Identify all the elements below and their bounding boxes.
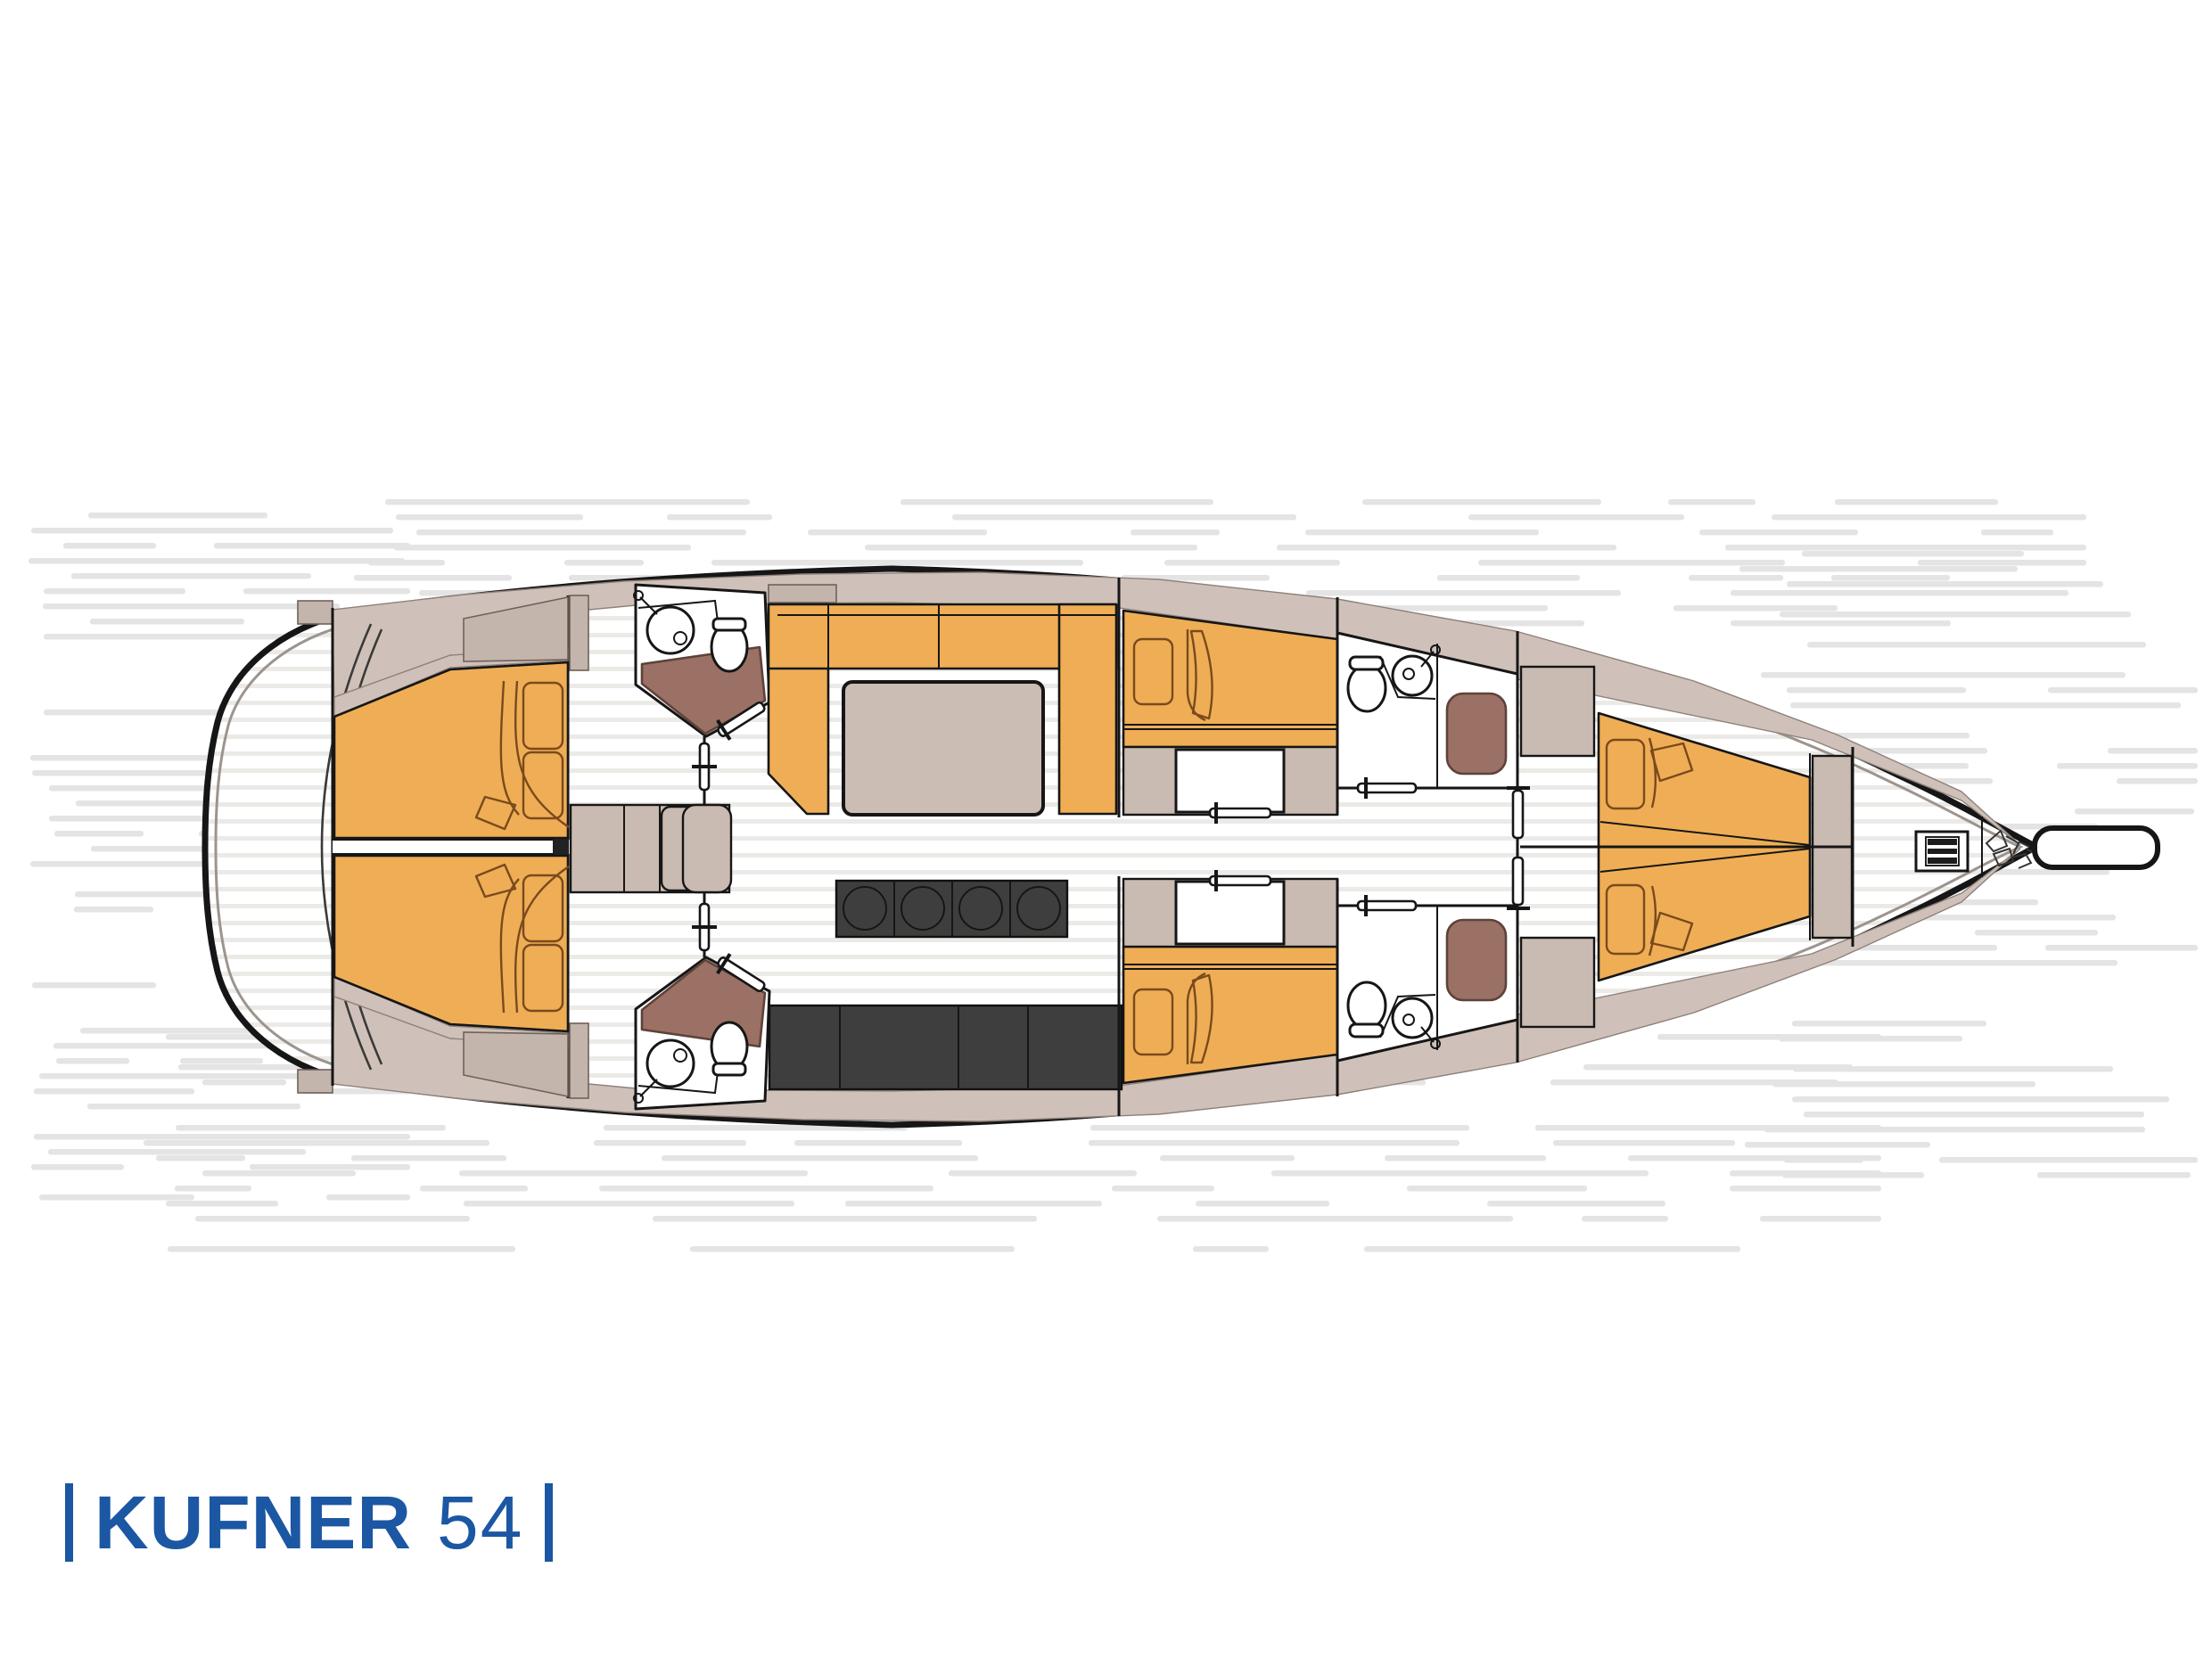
water-line-decor (1362, 499, 1601, 505)
water-line-decor (1131, 529, 1220, 536)
water-line-decor (662, 1155, 978, 1161)
stool-row (836, 881, 1067, 937)
water-line-decor (952, 514, 1296, 521)
water-line-decor (653, 1216, 1037, 1222)
water-line-decor (416, 529, 746, 536)
water-line-decor (1981, 529, 2053, 536)
toilet-tank (713, 1063, 745, 1075)
water-line-decor (1689, 575, 1783, 581)
shower-seat (1447, 694, 1506, 774)
water-line-decor (354, 575, 512, 581)
water-line-decor (1835, 499, 1998, 505)
water-line-decor (1790, 702, 2181, 709)
stern-locker-starboard (298, 1070, 333, 1093)
water-line-decor (845, 1201, 1102, 1207)
water-line-decor (326, 1194, 410, 1201)
water-line-decor (1784, 1157, 1863, 1163)
salon-back-locker (769, 585, 836, 603)
water-line-decor (464, 1201, 794, 1207)
water-line-decor (808, 529, 987, 536)
water-line-decor (1730, 1186, 1881, 1192)
water-line-decor (351, 1155, 506, 1161)
water-line-decor (1089, 1140, 1460, 1146)
water-line-decor (1739, 566, 2018, 572)
water-line-decor (1807, 642, 2146, 648)
water-line-decor (1160, 1155, 1295, 1161)
water-line-decor (1112, 1186, 1214, 1192)
windlass-stripe (1928, 849, 1957, 854)
water-line-decor (1407, 1186, 1587, 1192)
water-line-decor (1582, 1216, 1668, 1222)
water-line-decor (1760, 1216, 1881, 1222)
stern-locker-port (298, 601, 333, 624)
water-line-decor (1772, 1081, 2035, 1088)
aft-divider-door (553, 839, 569, 855)
water-line-decor (88, 513, 267, 519)
water-line-decor (1364, 1246, 1740, 1252)
water-line-decor (34, 1088, 194, 1095)
galley-worktop (769, 1005, 1122, 1089)
water-line-decor (1939, 1157, 2198, 1163)
brand-name: KUFNER (95, 1485, 412, 1560)
water-line-decor (87, 1104, 300, 1110)
water-line-decor (1764, 1127, 2145, 1133)
water-line-decor (1090, 1125, 1469, 1131)
water-line-decor (900, 499, 1213, 505)
water-line-decor (30, 861, 228, 867)
forward-cabin-door (1513, 858, 1523, 905)
yacht-deck-plan-page: KUFNER 54 (0, 0, 2212, 1658)
water-line-decor (1731, 620, 1951, 627)
water-line-decor (1782, 1172, 1924, 1178)
toilet (1348, 665, 1386, 711)
water-line-decor (1799, 960, 2117, 966)
toilet-tank (1350, 657, 1383, 669)
salon-sofa-right-arm (1059, 604, 1116, 814)
water-line-decor (1787, 687, 1966, 694)
water-line-decor (1780, 611, 2131, 618)
water-line-decor (31, 1164, 124, 1170)
water-line-decor (243, 588, 410, 595)
water-line-decor (32, 982, 156, 989)
water-line-decor (2045, 945, 2198, 951)
water-line-decor (1487, 1201, 1665, 1207)
water-line-decor (29, 558, 405, 564)
water-line-decor (1385, 1155, 1546, 1161)
water-line-decor (39, 1194, 194, 1201)
water-line-decor (1792, 1021, 1986, 1027)
water-line-decor (594, 1140, 746, 1146)
deck-plan-drawing (0, 0, 2212, 1658)
water-line-decor (250, 1164, 410, 1170)
water-line-decor (168, 1246, 515, 1252)
water-line-decor (949, 1170, 1137, 1177)
water-line-decor (1793, 1066, 2113, 1072)
water-line-decor (175, 1186, 251, 1192)
water-line-decor (1802, 551, 2024, 557)
water-line-decor (1478, 560, 1785, 566)
water-line-decor (1772, 514, 2086, 521)
water-line-decor (1157, 1216, 1513, 1222)
toilet-tank (1350, 1024, 1383, 1037)
water-line-decor (166, 1201, 278, 1207)
toilet-tank (713, 619, 745, 630)
forward-cabin-door (1513, 791, 1523, 838)
water-line-decor (1668, 499, 1756, 505)
water-line-decor (56, 1058, 129, 1064)
water-line-decor (396, 514, 583, 521)
water-line-decor (1306, 590, 1621, 596)
water-line-decor (90, 619, 244, 625)
aft-side-locker-port (570, 595, 588, 670)
water-line-decor (667, 514, 772, 521)
aft-side-locker-starboard (570, 1023, 588, 1098)
water-line-decor (1725, 545, 2086, 551)
shower-seat (1447, 920, 1506, 1000)
aft-cabin-divider-gap (333, 841, 568, 853)
water-line-decor (2057, 763, 2198, 769)
water-line-decor (1831, 575, 1950, 581)
galley-counter (769, 1005, 1122, 1089)
forward-locker-starboard (1521, 938, 1594, 1027)
water-line-decor (1779, 1036, 1962, 1042)
water-line-decor (599, 1186, 933, 1192)
windlass-stripe (1928, 839, 1957, 845)
windlass-stripe (1928, 858, 1957, 864)
water-line-decor (1553, 1140, 1735, 1146)
mid-cabin-door (1210, 808, 1270, 817)
logo-left-bar (65, 1483, 73, 1562)
closet-front (1176, 750, 1284, 812)
water-line-decor (1761, 672, 2126, 678)
closet-front (1176, 882, 1284, 944)
water-line-decor (1918, 560, 2086, 566)
water-line-decor (1745, 1142, 1930, 1148)
water-line-decor (394, 545, 691, 551)
mid-cabin-door (1210, 876, 1270, 885)
water-line-decor (865, 545, 1197, 551)
water-line-decor (2075, 808, 2194, 815)
water-line-decor (180, 1058, 263, 1064)
water-line-decor (420, 1186, 528, 1192)
water-line-decor (2108, 748, 2198, 754)
water-line-decor (459, 1170, 808, 1177)
salon (769, 585, 1116, 815)
water-line-decor (214, 543, 410, 549)
forward-locker-port (1521, 667, 1594, 756)
water-line-decor (74, 907, 153, 913)
water-line-decor (54, 831, 144, 837)
water-line-decor (71, 573, 311, 579)
water-line-decor (1792, 1096, 2169, 1103)
water-line-decor (1193, 1246, 1269, 1252)
water-line-decor (144, 1140, 489, 1146)
water-line-decor (195, 1216, 470, 1222)
toilet (1348, 982, 1386, 1029)
water-line-decor (202, 1170, 356, 1177)
water-line-decor (1271, 1170, 1649, 1177)
brand-logo: KUFNER 54 (65, 1482, 553, 1564)
water-line-decor (711, 560, 1083, 566)
water-line-decor (156, 1155, 245, 1161)
water-line-decor (44, 588, 185, 595)
model-number: 54 (437, 1485, 523, 1560)
water-line-decor (202, 1079, 286, 1086)
water-line-decor (48, 1149, 306, 1155)
bowsprit (2035, 828, 2158, 867)
sink-basin (647, 1040, 694, 1087)
water-line-decor (2117, 778, 2198, 784)
water-line-decor (1699, 529, 1858, 536)
logo-right-bar (545, 1483, 553, 1562)
water-line-decor (176, 1125, 446, 1131)
water-line-decor (2048, 687, 2198, 694)
water-line-decor (2037, 1172, 2191, 1178)
water-line-decor (564, 560, 644, 566)
step (683, 805, 731, 892)
salon-table (843, 682, 1043, 815)
water-line-decor (1277, 545, 1616, 551)
water-line-decor (80, 1028, 264, 1034)
water-line-decor (794, 1140, 962, 1146)
water-line-decor (63, 543, 156, 549)
water-line-decor (43, 603, 340, 610)
water-line-decor (1196, 1201, 1329, 1207)
companionway-steps (571, 805, 731, 892)
water-line-decor (1437, 575, 1580, 581)
water-line-decor (1731, 590, 2068, 596)
water-line-decor (385, 499, 750, 505)
water-line-decor (1975, 930, 2098, 936)
sink-basin (647, 607, 694, 653)
water-line-decor (1804, 1112, 2144, 1118)
water-line-decor (1673, 605, 1838, 611)
water-line-decor (690, 1246, 1015, 1252)
water-line-decor (31, 528, 393, 534)
water-line-decor (1468, 514, 1684, 521)
water-line-decor (1305, 529, 1539, 536)
water-line-decor (1787, 581, 2103, 587)
water-line-decor (34, 1134, 410, 1140)
water-line-decor (1164, 560, 1340, 566)
